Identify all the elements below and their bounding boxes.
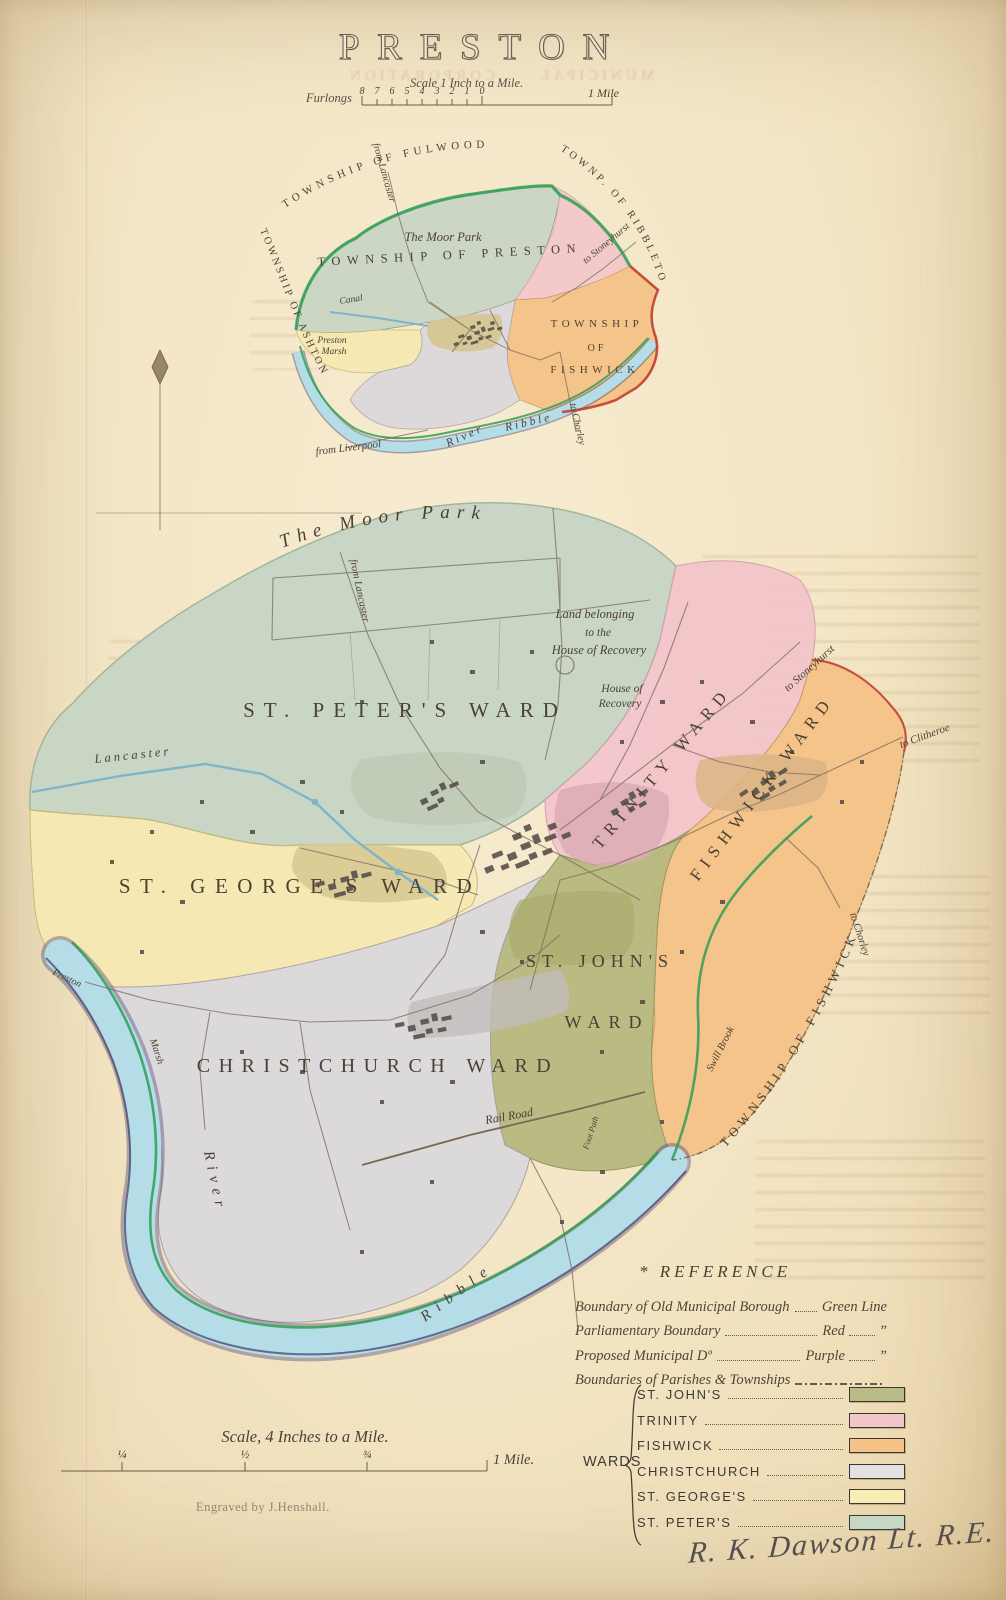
inset-label-from-liverpool: from Liverpool [315, 438, 382, 458]
legend-row-proposed: Proposed Municipal Dº Purple ” [575, 1340, 887, 1365]
label-house-of-recovery-1: House of [600, 683, 644, 695]
svg-text:½: ½ [241, 1447, 250, 1461]
inset-label-fishwick-1: TOWNSHIP [551, 318, 644, 330]
label-land-belonging-2: to the [585, 627, 611, 639]
canal-basin [312, 799, 319, 806]
reference-star: * [639, 1262, 652, 1281]
svg-text:¼: ¼ [118, 1447, 127, 1461]
reference-legend: * REFERENCE Boundary of Old Municipal Bo… [575, 1262, 887, 1389]
wards-legend: WARDS ST. JOHN'S TRINITY FISHWICK CHRIST… [575, 1382, 905, 1535]
reference-title: * REFERENCE [639, 1262, 887, 1282]
scale-bar-bottom: Scale, 4 Inches to a Mile. ¼ ½ ¾ 1 Mile. [55, 1424, 535, 1484]
north-arrow-icon [152, 350, 168, 384]
legend-row-old-borough: Boundary of Old Municipal Borough Green … [575, 1291, 887, 1316]
label-st-johns-ward: WARD [565, 1012, 650, 1032]
label-christchurch-ward: CHRISTCHURCH WARD [197, 1055, 560, 1077]
inset-label-fishwick-2: OF [588, 343, 607, 354]
engraver-credit: Engraved by J.Henshall. [196, 1500, 330, 1515]
st-peters-builtup [351, 752, 526, 825]
inset-label-moor-park: The Moor Park [404, 230, 482, 244]
label-st-peters-ward: ST. PETER'S WARD [243, 698, 567, 722]
inset-map: TOWNSHIP OF FULWOOD TOWNP. OF RIBBLETON … [0, 0, 668, 458]
map-sheet: MUNICIPAL CORPORATION PRESTON Scale 1 In… [0, 0, 1006, 1600]
swatch-trinity [849, 1413, 905, 1428]
label-st-georges-ward: ST. GEORGE'S WARD [119, 874, 481, 898]
main-map: The Moor Park from Lancaster Land belong… [30, 502, 952, 1354]
inset-label-preston-marsh-2: Marsh [321, 347, 347, 357]
label-land-belonging-1: Land belonging [555, 607, 635, 621]
svg-text:1 Mile.: 1 Mile. [493, 1452, 534, 1468]
svg-text:¾: ¾ [363, 1447, 372, 1461]
inset-label-fishwick-3: FISHWICK [550, 364, 639, 376]
wards-brace [625, 1384, 643, 1546]
label-house-of-recovery-2: Recovery [598, 698, 643, 710]
swatch-christchurch [849, 1464, 905, 1479]
label-st-johns: ST. JOHN'S [526, 951, 674, 971]
label-to-clitheroe: to Clitheroe [898, 722, 952, 751]
north-marker [96, 350, 362, 530]
swatch-st-johns [849, 1387, 905, 1402]
legend-row-parliamentary: Parliamentary Boundary Red ” [575, 1316, 887, 1341]
swatch-st-georges [849, 1489, 905, 1504]
swatch-fishwick [849, 1438, 905, 1453]
inset-label-preston-marsh-1: Preston [316, 336, 346, 346]
label-land-belonging-3: House of Recovery [551, 643, 647, 657]
scale-bottom-caption: Scale, 4 Inches to a Mile. [221, 1427, 388, 1446]
